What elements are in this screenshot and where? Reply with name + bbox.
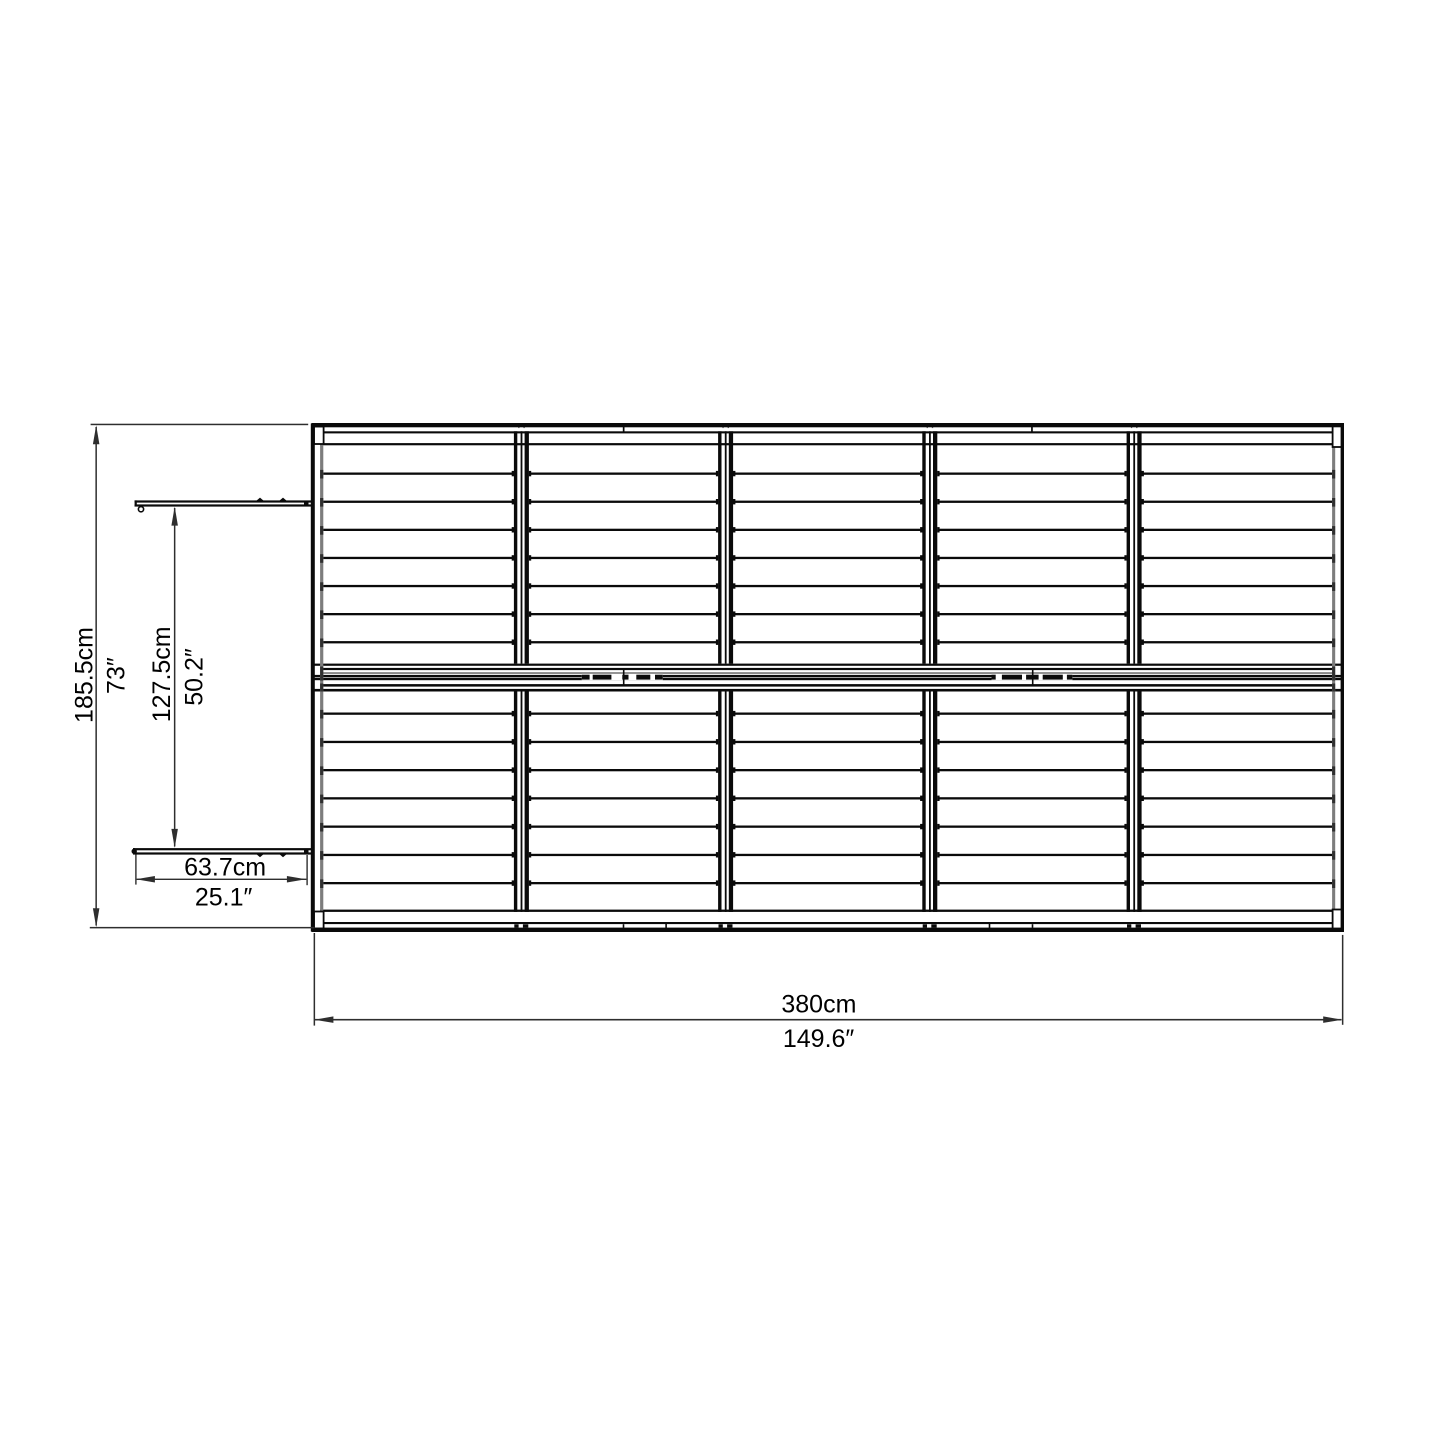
svg-text:25.1″: 25.1″	[195, 883, 253, 911]
svg-text:185.5cm: 185.5cm	[70, 627, 98, 723]
svg-text:380cm: 380cm	[781, 990, 856, 1018]
svg-text:63.7cm: 63.7cm	[184, 854, 266, 882]
svg-text:149.6″: 149.6″	[783, 1025, 855, 1053]
svg-text:50.2″: 50.2″	[180, 648, 208, 706]
svg-text:73″: 73″	[102, 657, 130, 694]
svg-text:127.5cm: 127.5cm	[148, 626, 176, 722]
